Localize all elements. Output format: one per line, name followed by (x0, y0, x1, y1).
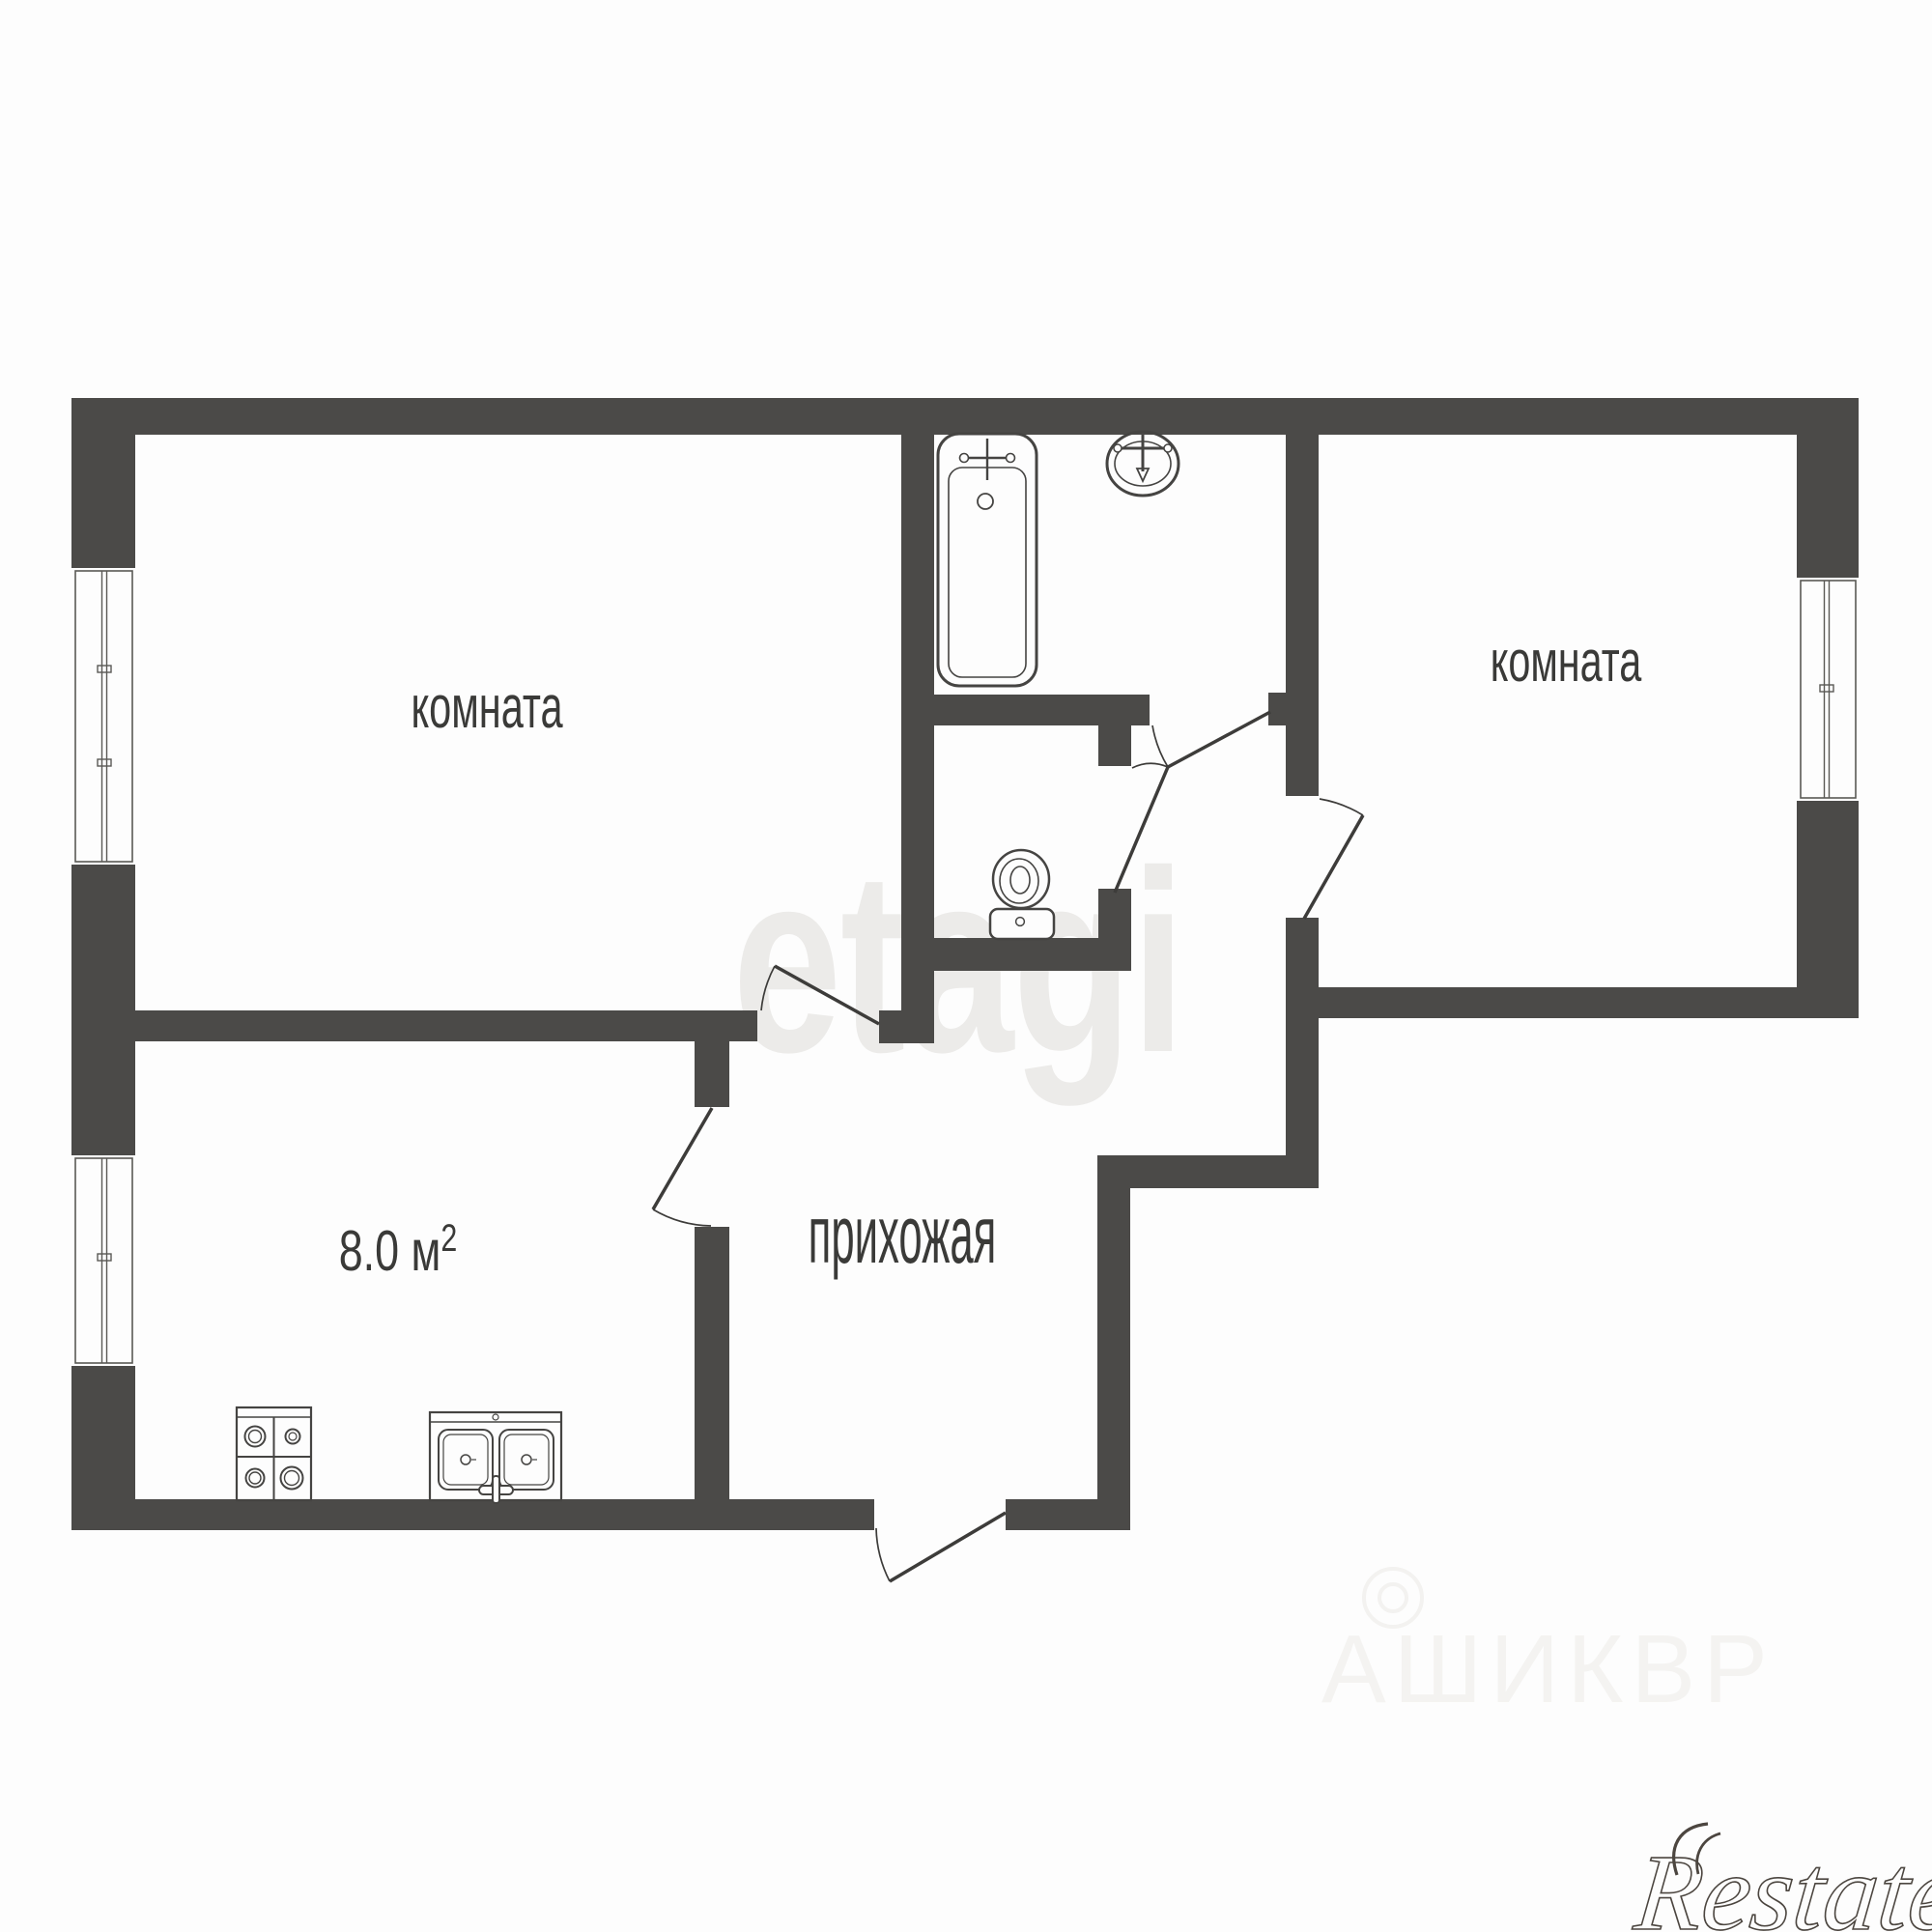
svg-text:комната: комната (1491, 628, 1642, 694)
svg-text:прихожая: прихожая (809, 1190, 997, 1281)
svg-text:8.0 м2: 8.0 м2 (339, 1216, 458, 1284)
svg-text:комната: комната (411, 674, 563, 741)
svg-text:АШИКВР: АШИКВР (1321, 1615, 1776, 1723)
